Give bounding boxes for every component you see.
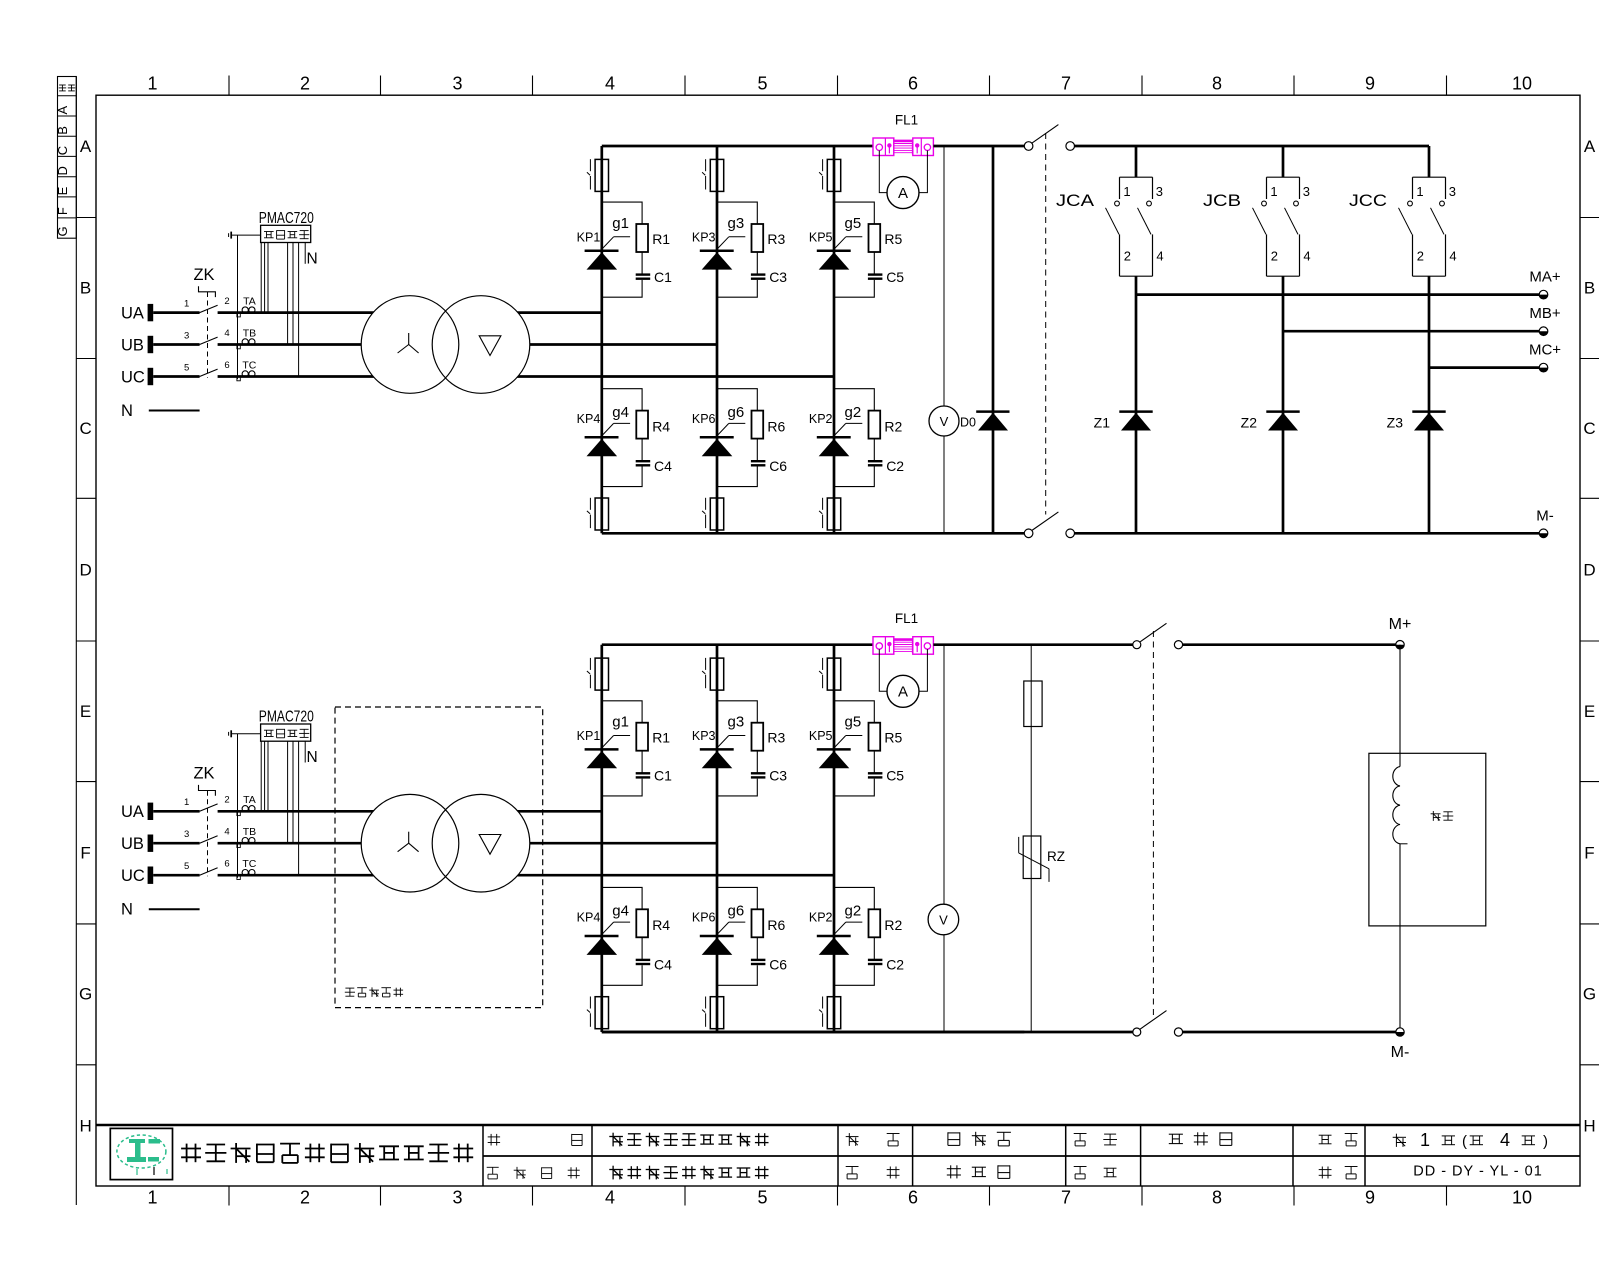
svg-text:C6: C6 bbox=[769, 957, 787, 973]
svg-text:TB: TB bbox=[243, 327, 256, 339]
svg-text:C4: C4 bbox=[654, 957, 672, 973]
svg-text:R3: R3 bbox=[767, 231, 785, 247]
svg-text:A: A bbox=[898, 684, 908, 701]
svg-text:R6: R6 bbox=[767, 419, 785, 435]
svg-text:1: 1 bbox=[184, 298, 189, 309]
svg-text:C3: C3 bbox=[769, 269, 787, 285]
svg-text:C6: C6 bbox=[769, 458, 787, 474]
svg-text:G: G bbox=[79, 985, 92, 1004]
svg-text:MA+: MA+ bbox=[1529, 269, 1561, 286]
svg-text:5: 5 bbox=[757, 1188, 767, 1208]
svg-text:2: 2 bbox=[224, 795, 229, 806]
svg-text:R3: R3 bbox=[767, 730, 785, 746]
svg-text:1: 1 bbox=[184, 797, 189, 808]
svg-text:5: 5 bbox=[184, 861, 189, 872]
svg-text:N: N bbox=[307, 749, 318, 766]
svg-text:B: B bbox=[80, 279, 91, 298]
svg-text:KP5: KP5 bbox=[809, 231, 833, 245]
svg-text:R4: R4 bbox=[652, 419, 670, 435]
svg-text:7: 7 bbox=[1061, 1188, 1071, 1208]
svg-text:H: H bbox=[79, 1116, 91, 1135]
svg-text:R2: R2 bbox=[884, 917, 902, 933]
svg-text:C1: C1 bbox=[654, 768, 672, 784]
svg-text:TC: TC bbox=[242, 359, 256, 371]
svg-text:10: 10 bbox=[1512, 74, 1532, 94]
svg-text:4: 4 bbox=[224, 827, 229, 838]
svg-text:6: 6 bbox=[224, 360, 229, 371]
svg-text:KP1: KP1 bbox=[577, 231, 601, 245]
svg-text:E: E bbox=[55, 186, 70, 195]
svg-text:KP2: KP2 bbox=[809, 911, 833, 925]
svg-text:FL1: FL1 bbox=[895, 113, 918, 128]
svg-text:g4: g4 bbox=[612, 404, 629, 421]
svg-text:3: 3 bbox=[1303, 184, 1310, 199]
svg-text:1: 1 bbox=[1270, 184, 1277, 199]
svg-text:KP6: KP6 bbox=[692, 412, 716, 426]
svg-text:R1: R1 bbox=[652, 231, 670, 247]
svg-text:7: 7 bbox=[1061, 74, 1071, 94]
svg-text:F: F bbox=[80, 843, 90, 862]
svg-text:g2: g2 bbox=[845, 404, 862, 421]
svg-text:C1: C1 bbox=[654, 269, 672, 285]
svg-text:g5: g5 bbox=[845, 215, 862, 232]
svg-text:ZK: ZK bbox=[193, 266, 214, 284]
svg-text:1: 1 bbox=[1420, 1130, 1430, 1150]
svg-text:JCB: JCB bbox=[1203, 191, 1241, 210]
svg-text:R2: R2 bbox=[884, 419, 902, 435]
svg-text:4: 4 bbox=[224, 328, 229, 339]
svg-text:D: D bbox=[55, 166, 70, 175]
svg-text:4: 4 bbox=[1303, 249, 1310, 264]
svg-text:3: 3 bbox=[452, 1188, 462, 1208]
svg-text:2: 2 bbox=[1417, 249, 1424, 264]
svg-text:(: ( bbox=[1462, 1133, 1467, 1150]
svg-text:A: A bbox=[80, 137, 92, 156]
svg-text:UC: UC bbox=[121, 368, 145, 386]
svg-text:1: 1 bbox=[147, 1188, 157, 1208]
svg-text:R4: R4 bbox=[652, 917, 670, 933]
svg-text:2: 2 bbox=[300, 74, 310, 94]
svg-text:Z1: Z1 bbox=[1094, 414, 1111, 430]
svg-text:g6: g6 bbox=[728, 903, 745, 920]
svg-text:V: V bbox=[940, 414, 949, 429]
svg-text:G: G bbox=[55, 226, 70, 236]
svg-text:D: D bbox=[1583, 561, 1595, 580]
svg-text:R6: R6 bbox=[767, 917, 785, 933]
svg-text:TA: TA bbox=[243, 794, 256, 806]
svg-text:8: 8 bbox=[1212, 74, 1222, 94]
svg-text:C2: C2 bbox=[886, 458, 904, 474]
svg-text:4: 4 bbox=[605, 1188, 615, 1208]
svg-text:B: B bbox=[1584, 279, 1595, 298]
svg-text:g5: g5 bbox=[845, 714, 862, 731]
svg-text:C4: C4 bbox=[654, 458, 672, 474]
svg-text:Z2: Z2 bbox=[1241, 414, 1258, 430]
svg-text:A: A bbox=[55, 106, 70, 115]
svg-text:N: N bbox=[121, 901, 133, 919]
svg-text:2: 2 bbox=[1271, 249, 1278, 264]
svg-text:N: N bbox=[307, 251, 318, 268]
svg-text:g3: g3 bbox=[728, 714, 745, 731]
svg-text:DD - DY - YL - 01: DD - DY - YL - 01 bbox=[1413, 1164, 1543, 1180]
svg-text:4: 4 bbox=[1156, 249, 1163, 264]
svg-text:KP3: KP3 bbox=[692, 729, 716, 743]
svg-text:RZ: RZ bbox=[1047, 849, 1065, 864]
svg-text:TB: TB bbox=[243, 826, 256, 838]
svg-text:C: C bbox=[55, 146, 70, 155]
svg-text:g1: g1 bbox=[612, 215, 629, 232]
svg-text:A: A bbox=[898, 185, 908, 202]
svg-text:C: C bbox=[1583, 419, 1595, 438]
svg-text:MB+: MB+ bbox=[1529, 305, 1561, 322]
svg-text:C5: C5 bbox=[886, 768, 904, 784]
svg-text:E: E bbox=[80, 702, 91, 721]
svg-text:FL1: FL1 bbox=[895, 611, 918, 626]
svg-text:KP3: KP3 bbox=[692, 231, 716, 245]
svg-text:F: F bbox=[1584, 843, 1594, 862]
svg-text:N: N bbox=[121, 402, 133, 420]
svg-text:KP4: KP4 bbox=[577, 412, 601, 426]
svg-text:KP6: KP6 bbox=[692, 911, 716, 925]
svg-text:3: 3 bbox=[1449, 184, 1456, 199]
svg-text:PMAC720: PMAC720 bbox=[259, 709, 314, 726]
svg-text:B: B bbox=[55, 126, 70, 135]
svg-text:4: 4 bbox=[1449, 249, 1456, 264]
svg-text:MC+: MC+ bbox=[1529, 342, 1561, 359]
svg-text:UB: UB bbox=[121, 336, 144, 354]
svg-text:3: 3 bbox=[184, 330, 189, 341]
svg-text:E: E bbox=[1584, 702, 1595, 721]
svg-text:10: 10 bbox=[1512, 1188, 1532, 1208]
svg-text:D: D bbox=[79, 561, 91, 580]
svg-text:2: 2 bbox=[1124, 249, 1131, 264]
svg-text:5: 5 bbox=[757, 74, 767, 94]
svg-text:UC: UC bbox=[121, 867, 145, 885]
svg-text:R5: R5 bbox=[884, 730, 902, 746]
svg-text:H: H bbox=[1583, 1116, 1595, 1135]
svg-text:5: 5 bbox=[184, 362, 189, 373]
svg-text:JCA: JCA bbox=[1056, 191, 1095, 210]
svg-text:UB: UB bbox=[121, 835, 144, 853]
svg-text:6: 6 bbox=[908, 74, 918, 94]
svg-text:6: 6 bbox=[224, 859, 229, 870]
svg-text:g3: g3 bbox=[728, 215, 745, 232]
svg-text:KP4: KP4 bbox=[577, 911, 601, 925]
svg-text:C3: C3 bbox=[769, 768, 787, 784]
svg-text:4: 4 bbox=[605, 74, 615, 94]
svg-text:6: 6 bbox=[908, 1188, 918, 1208]
svg-text:F: F bbox=[55, 207, 70, 215]
svg-text:TC: TC bbox=[242, 858, 256, 870]
svg-text:9: 9 bbox=[1365, 74, 1375, 94]
svg-text:4: 4 bbox=[1500, 1130, 1510, 1150]
svg-text:9: 9 bbox=[1365, 1188, 1375, 1208]
svg-text:8: 8 bbox=[1212, 1188, 1222, 1208]
svg-text:A: A bbox=[1584, 137, 1596, 156]
svg-text:C: C bbox=[79, 419, 91, 438]
svg-text:g6: g6 bbox=[728, 404, 745, 421]
svg-text:UA: UA bbox=[121, 803, 144, 821]
svg-text:KP2: KP2 bbox=[809, 412, 833, 426]
svg-text:TA: TA bbox=[243, 295, 256, 307]
svg-text:R1: R1 bbox=[652, 730, 670, 746]
svg-text:3: 3 bbox=[184, 829, 189, 840]
svg-text:M-: M- bbox=[1391, 1044, 1410, 1061]
svg-text:C2: C2 bbox=[886, 957, 904, 973]
svg-text:JCC: JCC bbox=[1349, 191, 1387, 210]
svg-text:1: 1 bbox=[147, 74, 157, 94]
svg-text:3: 3 bbox=[452, 74, 462, 94]
svg-text:D0: D0 bbox=[960, 416, 976, 430]
svg-text:G: G bbox=[1583, 985, 1596, 1004]
svg-text:C5: C5 bbox=[886, 269, 904, 285]
svg-text:g4: g4 bbox=[612, 903, 629, 920]
svg-text:1: 1 bbox=[1123, 184, 1130, 199]
svg-text:PMAC720: PMAC720 bbox=[259, 210, 314, 227]
svg-text:M+: M+ bbox=[1389, 616, 1412, 633]
svg-text:KP5: KP5 bbox=[809, 729, 833, 743]
svg-text:g2: g2 bbox=[845, 903, 862, 920]
svg-text:3: 3 bbox=[1156, 184, 1163, 199]
svg-text:UA: UA bbox=[121, 304, 144, 322]
svg-text:M-: M- bbox=[1536, 508, 1554, 525]
svg-text:V: V bbox=[939, 913, 948, 928]
svg-text:): ) bbox=[1543, 1133, 1548, 1150]
svg-text:ZK: ZK bbox=[193, 765, 214, 783]
svg-text:2: 2 bbox=[224, 296, 229, 307]
svg-text:1: 1 bbox=[1416, 184, 1423, 199]
svg-text:R5: R5 bbox=[884, 231, 902, 247]
svg-text:2: 2 bbox=[300, 1188, 310, 1208]
svg-text:g1: g1 bbox=[612, 714, 629, 731]
svg-text:Z3: Z3 bbox=[1387, 414, 1404, 430]
svg-text:KP1: KP1 bbox=[577, 729, 601, 743]
